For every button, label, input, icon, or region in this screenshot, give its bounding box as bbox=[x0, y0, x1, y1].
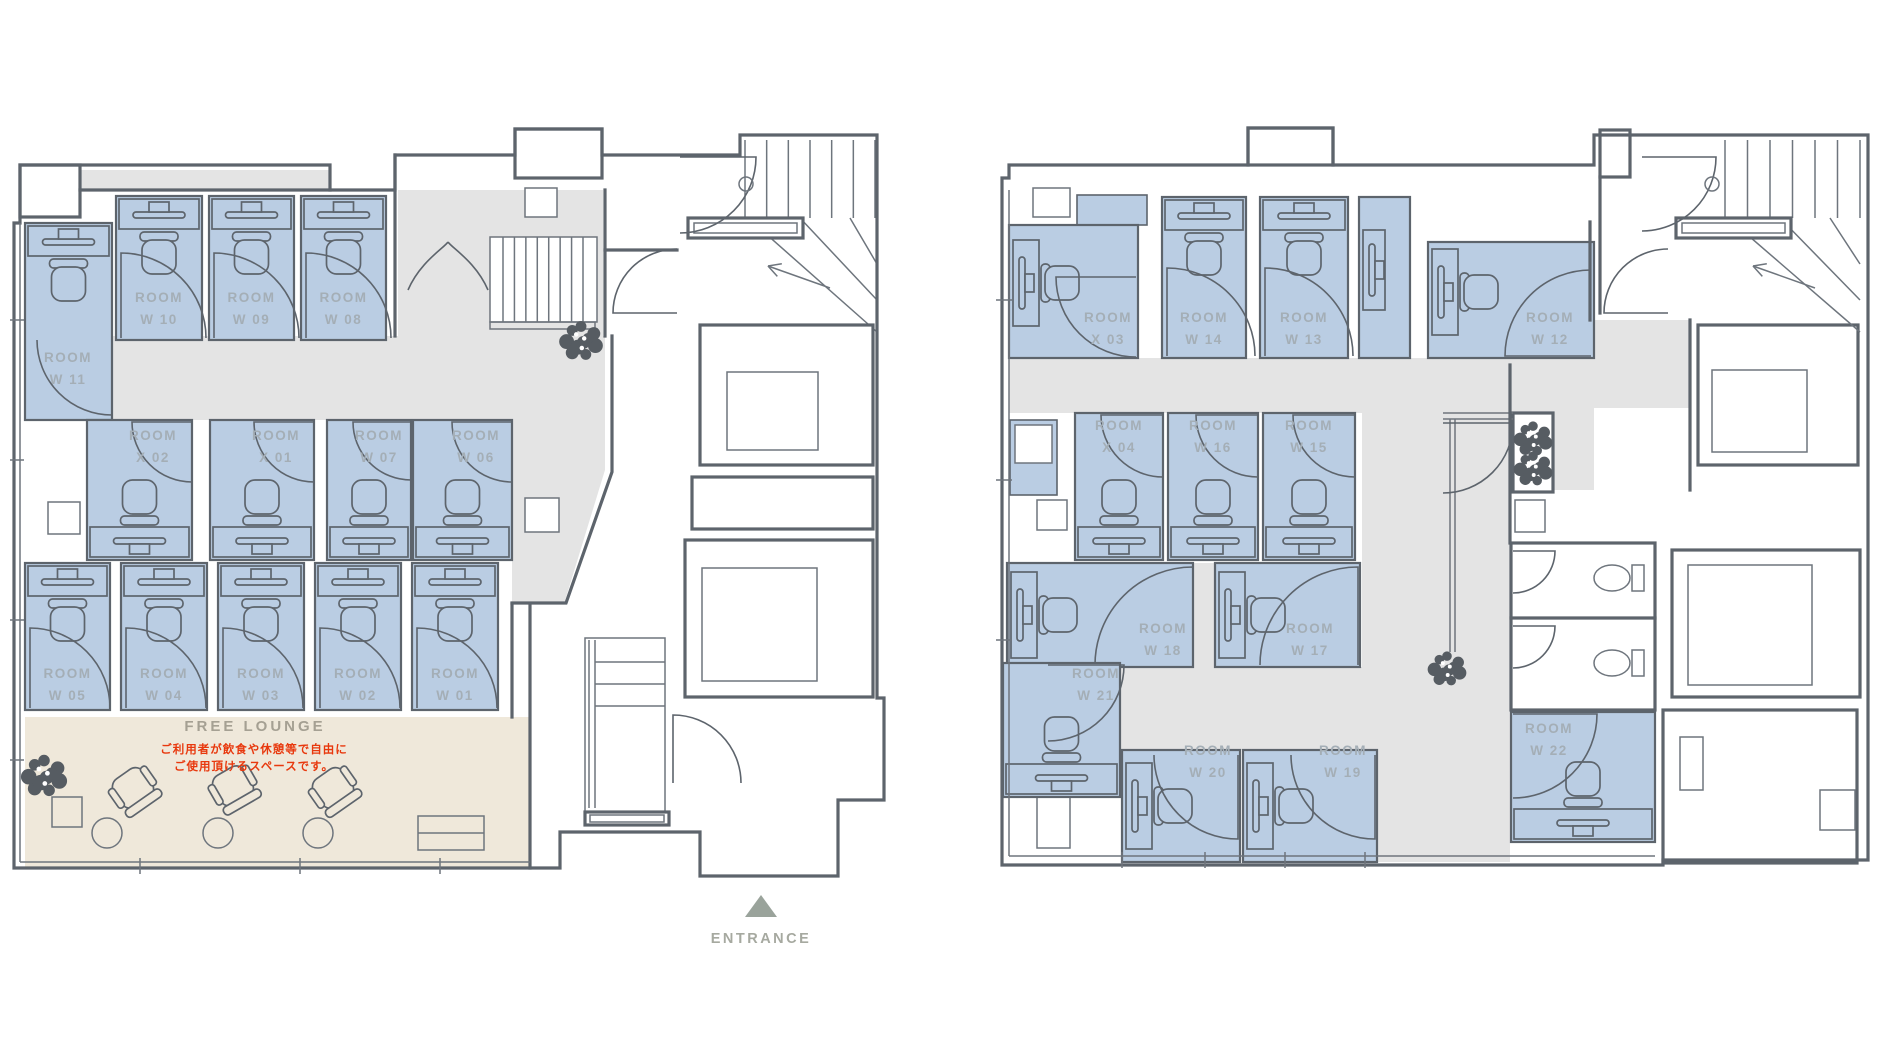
room-w09-label: W 09 bbox=[233, 312, 271, 327]
entrance-arrow-icon bbox=[745, 895, 777, 917]
chair-icon bbox=[1045, 717, 1079, 751]
room-w11 bbox=[25, 223, 112, 420]
room-w10-label: W 10 bbox=[140, 312, 178, 327]
room-w08-label: ROOM bbox=[320, 290, 368, 305]
structure bbox=[1698, 325, 1858, 465]
wall-segment bbox=[589, 640, 665, 808]
entrance-marker: ENTRANCE bbox=[711, 895, 812, 947]
chair-icon bbox=[1043, 598, 1077, 632]
monitor-icon bbox=[42, 579, 94, 585]
room-w20-label: ROOM bbox=[1184, 743, 1232, 758]
chair-icon bbox=[1290, 516, 1328, 525]
monitor-icon bbox=[236, 538, 288, 544]
structure bbox=[685, 540, 873, 697]
room-w18-label: ROOM bbox=[1139, 621, 1187, 636]
monitor-icon bbox=[1444, 283, 1453, 301]
room-w13-label: W 13 bbox=[1285, 332, 1323, 347]
room-w10-label: ROOM bbox=[135, 290, 183, 305]
chair-icon bbox=[1287, 241, 1321, 275]
monitor-icon bbox=[1259, 797, 1268, 815]
chair-icon bbox=[1464, 275, 1498, 309]
free-lounge-title: FREE LOUNGE bbox=[184, 718, 325, 735]
room-w06-label: ROOM bbox=[452, 428, 500, 443]
chair-icon bbox=[51, 607, 85, 641]
monitor-icon bbox=[252, 544, 272, 554]
room-w03-label: W 03 bbox=[242, 688, 280, 703]
monitor-icon bbox=[1557, 820, 1609, 826]
monitor-icon bbox=[1187, 538, 1239, 544]
chair-icon bbox=[446, 480, 480, 514]
monitor-icon bbox=[359, 544, 379, 554]
structure bbox=[20, 165, 80, 217]
structure bbox=[1590, 320, 1690, 408]
chair-icon bbox=[350, 516, 388, 525]
room-w16-label: W 16 bbox=[1194, 440, 1232, 455]
room-w16-label: ROOM bbox=[1189, 418, 1237, 433]
pillar bbox=[1015, 425, 1052, 463]
pillar bbox=[1515, 500, 1545, 532]
monitor-icon bbox=[149, 202, 169, 212]
room-w12 bbox=[1428, 242, 1594, 358]
room-x02-label: ROOM bbox=[129, 428, 177, 443]
chair-icon bbox=[1196, 480, 1230, 514]
room-w03-label: ROOM bbox=[237, 666, 285, 681]
monitor-icon bbox=[1178, 213, 1230, 219]
room-w13-label: ROOM bbox=[1280, 310, 1328, 325]
room-x03-label: X 03 bbox=[1091, 332, 1125, 347]
room-w12-label: ROOM bbox=[1526, 310, 1574, 325]
entrance-label: ENTRANCE bbox=[711, 931, 812, 947]
room-w18-label: W 18 bbox=[1144, 643, 1182, 658]
free-lounge-note-line1: ご利用者が飲食や休憩等で自由に bbox=[160, 742, 348, 756]
monitor-icon bbox=[242, 202, 262, 212]
room-w11-label: ROOM bbox=[44, 350, 92, 365]
chair-icon bbox=[1100, 516, 1138, 525]
room-w15 bbox=[1263, 413, 1355, 560]
monitor-icon bbox=[59, 229, 79, 239]
stairs-direction-arrow-icon bbox=[768, 264, 830, 288]
monitor-icon bbox=[1278, 213, 1330, 219]
room-w01-label: ROOM bbox=[431, 666, 479, 681]
monitor-icon bbox=[1299, 544, 1319, 554]
room-w22-label: W 22 bbox=[1530, 743, 1568, 758]
floor-plan-right: ROOMX 03ROOMW 14ROOMW 13ROOMW 12ROOMX 04… bbox=[996, 128, 1868, 868]
room-w15-label: ROOM bbox=[1285, 418, 1333, 433]
room-x04 bbox=[1075, 413, 1163, 560]
structure bbox=[25, 717, 530, 868]
monitor-icon bbox=[1025, 274, 1034, 292]
monitor-icon bbox=[1019, 257, 1025, 309]
monitor-icon bbox=[334, 202, 354, 212]
monitor-icon bbox=[1225, 589, 1231, 641]
chair-icon bbox=[243, 516, 281, 525]
structure bbox=[1676, 218, 1791, 238]
stairs-direction-arrow-icon bbox=[1753, 264, 1815, 288]
monitor-icon bbox=[453, 544, 473, 554]
room-x03-label: ROOM bbox=[1084, 310, 1132, 325]
chair-icon bbox=[123, 480, 157, 514]
pillar bbox=[1037, 797, 1070, 848]
room-w09-label: ROOM bbox=[228, 290, 276, 305]
structure bbox=[692, 477, 873, 529]
room-w21 bbox=[1003, 663, 1124, 797]
door-arc-icon bbox=[613, 249, 677, 313]
monitor-icon bbox=[251, 569, 271, 579]
monitor-icon bbox=[1203, 544, 1223, 554]
monitor-icon bbox=[332, 579, 384, 585]
room-w16 bbox=[1168, 413, 1258, 560]
floor-plan-page: ROOMW 11ROOMW 10ROOMW 09ROOMW 08ROOMX 02… bbox=[0, 0, 1890, 1060]
room-w04-label: W 04 bbox=[145, 688, 183, 703]
monitor-icon bbox=[348, 569, 368, 579]
room-w14-label: ROOM bbox=[1180, 310, 1228, 325]
room-w14-label: W 14 bbox=[1185, 332, 1223, 347]
room-w17-label: W 17 bbox=[1291, 643, 1329, 658]
monitor-icon bbox=[1093, 538, 1145, 544]
room-x04-label: ROOM bbox=[1095, 418, 1143, 433]
room-w19-label: ROOM bbox=[1319, 743, 1367, 758]
room-w07-label: W 07 bbox=[360, 450, 398, 465]
monitor-icon bbox=[1438, 266, 1444, 318]
room-booth bbox=[1359, 197, 1410, 358]
monitor-icon bbox=[1375, 261, 1384, 279]
structure bbox=[1672, 550, 1860, 697]
free-lounge-note-line2: ご使用頂けるスペースです。 bbox=[174, 759, 334, 773]
monitor-icon bbox=[138, 579, 190, 585]
room-w17 bbox=[1215, 563, 1360, 667]
chair-icon bbox=[1043, 753, 1081, 762]
pillar bbox=[1033, 188, 1070, 217]
room-w08-label: W 08 bbox=[325, 312, 363, 327]
room-w19-label: W 19 bbox=[1324, 765, 1362, 780]
monitor-icon bbox=[1023, 606, 1032, 624]
monitor-icon bbox=[1017, 589, 1023, 641]
structure bbox=[1600, 130, 1630, 177]
monitor-icon bbox=[1052, 781, 1072, 791]
monitor-icon bbox=[114, 538, 166, 544]
chair-icon bbox=[444, 516, 482, 525]
free-lounge-area-labels: FREE LOUNGE ご利用者が飲食や休憩等で自由に ご使用頂けるスペースです… bbox=[160, 718, 348, 773]
structure bbox=[1077, 195, 1147, 225]
chair-icon bbox=[1187, 241, 1221, 275]
door-arc-icon bbox=[673, 715, 741, 783]
room-w21-label: ROOM bbox=[1072, 666, 1120, 681]
structure bbox=[688, 218, 803, 238]
room-w20-label: W 20 bbox=[1189, 765, 1227, 780]
corridor bbox=[80, 170, 330, 190]
monitor-icon bbox=[154, 569, 174, 579]
monitor-icon bbox=[437, 538, 489, 544]
door-arc-icon bbox=[1604, 249, 1668, 313]
floor-plan-canvas: ROOMW 11ROOMW 10ROOMW 09ROOMW 08ROOMX 02… bbox=[0, 0, 1890, 1060]
room-w12-label: W 12 bbox=[1531, 332, 1569, 347]
chair-icon bbox=[438, 607, 472, 641]
monitor-icon bbox=[1109, 544, 1129, 554]
chair-icon bbox=[1292, 480, 1326, 514]
pillar bbox=[525, 188, 557, 217]
room-w02-label: ROOM bbox=[334, 666, 382, 681]
monitor-icon bbox=[1573, 826, 1593, 836]
stairs-icon bbox=[745, 140, 875, 218]
structure bbox=[515, 129, 602, 178]
monitor-icon bbox=[445, 569, 465, 579]
chair-icon bbox=[1045, 266, 1079, 300]
structure bbox=[585, 812, 669, 825]
chair-icon bbox=[244, 607, 278, 641]
stairs-icon bbox=[1725, 140, 1860, 218]
monitor-icon bbox=[1283, 538, 1335, 544]
room-w15-label: W 15 bbox=[1290, 440, 1328, 455]
room-x02-label: X 02 bbox=[136, 450, 170, 465]
monitor-icon bbox=[235, 579, 287, 585]
chair-icon bbox=[341, 607, 375, 641]
monitor-icon bbox=[130, 544, 150, 554]
room-x01-label: X 01 bbox=[259, 450, 293, 465]
monitor-icon bbox=[1231, 606, 1240, 624]
pillar bbox=[48, 502, 80, 534]
room-w02-label: W 02 bbox=[339, 688, 377, 703]
monitor-icon bbox=[58, 569, 78, 579]
monitor-icon bbox=[429, 579, 481, 585]
chair-icon bbox=[147, 607, 181, 641]
structure bbox=[700, 325, 873, 465]
room-w11-label: W 11 bbox=[50, 372, 87, 387]
pillar bbox=[490, 237, 597, 322]
room-w22-label: ROOM bbox=[1525, 721, 1573, 736]
room-w04-label: ROOM bbox=[140, 666, 188, 681]
chair-icon bbox=[52, 267, 86, 301]
monitor-icon bbox=[1138, 797, 1147, 815]
pillar bbox=[525, 498, 559, 532]
monitor-icon bbox=[1194, 203, 1214, 213]
structure bbox=[1248, 128, 1333, 165]
monitor-icon bbox=[226, 212, 278, 218]
structure bbox=[1193, 563, 1215, 667]
room-w07-label: ROOM bbox=[355, 428, 403, 443]
room-x04-label: X 04 bbox=[1102, 440, 1136, 455]
structure bbox=[1663, 710, 1857, 863]
monitor-icon bbox=[318, 212, 370, 218]
chair-icon bbox=[121, 516, 159, 525]
monitor-icon bbox=[133, 212, 185, 218]
chair-icon bbox=[1564, 798, 1602, 807]
monitor-icon bbox=[1369, 244, 1375, 296]
chair-icon bbox=[245, 480, 279, 514]
room-w17-label: ROOM bbox=[1286, 621, 1334, 636]
monitor-icon bbox=[1036, 775, 1088, 781]
chair-icon bbox=[1566, 762, 1600, 796]
monitor-icon bbox=[1294, 203, 1314, 213]
monitor-icon bbox=[1253, 780, 1259, 832]
monitor-icon bbox=[343, 538, 395, 544]
room-x01-label: ROOM bbox=[252, 428, 300, 443]
chair-icon bbox=[352, 480, 386, 514]
chair-icon bbox=[1102, 480, 1136, 514]
monitor-icon bbox=[43, 239, 95, 245]
room-w21-label: W 21 bbox=[1077, 688, 1115, 703]
chair-icon bbox=[1194, 516, 1232, 525]
room-w05-label: ROOM bbox=[44, 666, 92, 681]
room-w05-label: W 05 bbox=[49, 688, 87, 703]
room-w06-label: W 06 bbox=[457, 450, 495, 465]
pillar bbox=[1037, 500, 1067, 530]
structure bbox=[585, 638, 665, 812]
room-w01-label: W 01 bbox=[436, 688, 474, 703]
monitor-icon bbox=[1132, 780, 1138, 832]
floor-plan-left: ROOMW 11ROOMW 10ROOMW 09ROOMW 08ROOMX 02… bbox=[10, 129, 884, 876]
